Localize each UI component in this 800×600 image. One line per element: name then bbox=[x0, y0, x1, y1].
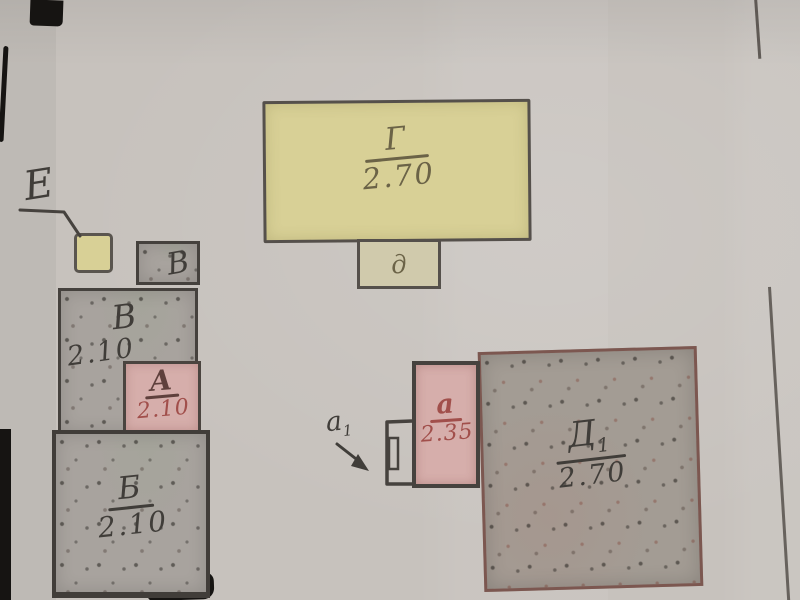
paper-background: Г 2.70 д Е В В 2.10 А 2.10 Б 2.10 bbox=[0, 0, 800, 600]
door-bracket bbox=[387, 421, 412, 484]
linework-layer bbox=[0, 0, 800, 600]
door-bracket-inner bbox=[389, 438, 398, 469]
marker-e-leader-line bbox=[20, 210, 80, 236]
